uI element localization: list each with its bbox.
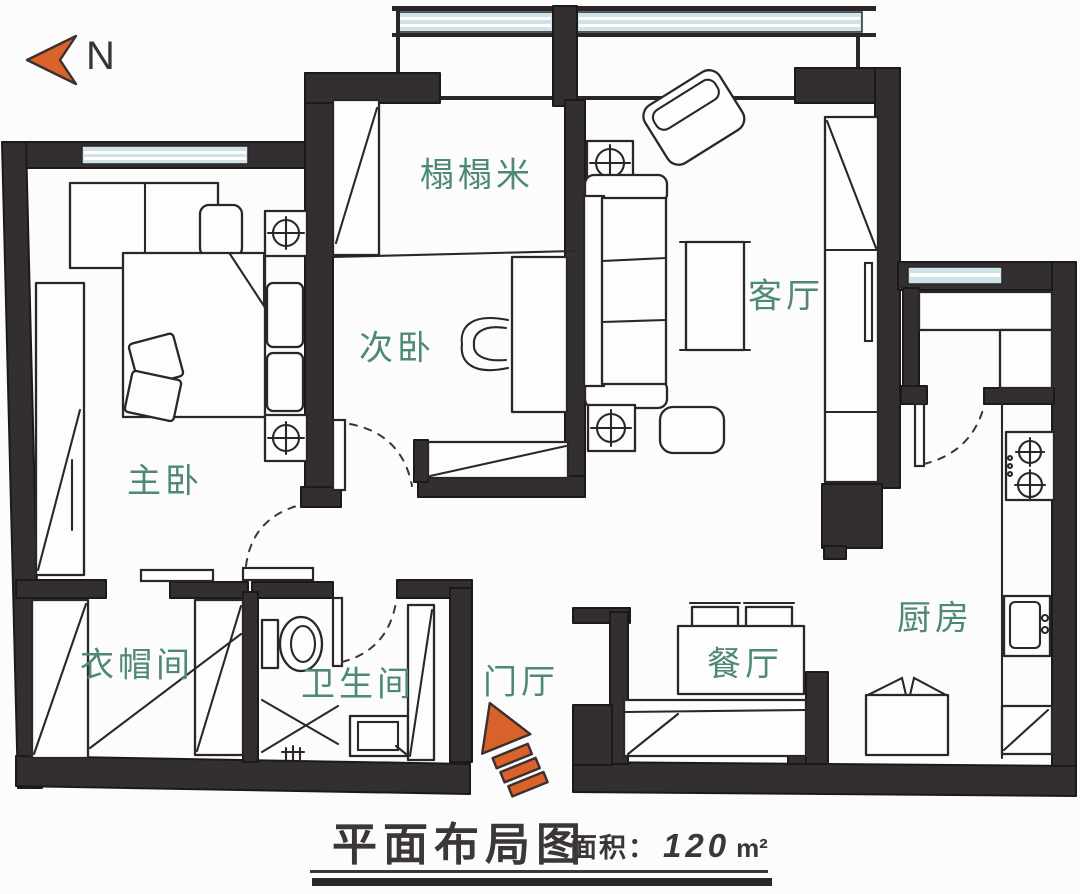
desk-chair (462, 318, 508, 370)
area-label: 面积： (570, 826, 657, 865)
room-label-master-bedroom: 主卧 (127, 454, 203, 503)
armchair (639, 65, 750, 169)
nightstand-lamp (265, 211, 307, 256)
desk (512, 257, 567, 412)
north-label: N (86, 34, 115, 79)
kitchen-sink (1004, 596, 1050, 656)
counter-corner (1000, 330, 1052, 388)
second-bedroom-furniture (428, 257, 568, 478)
base-cabinet (1002, 706, 1052, 754)
room-label-entrance-hall: 门厅 (483, 655, 559, 704)
title-underline-thin (310, 870, 768, 873)
room-label-living-room: 客厅 (748, 269, 824, 318)
nightstand-lamp (265, 415, 307, 461)
storage-bench (624, 700, 806, 756)
tv-cabinet (825, 117, 878, 482)
area-info: 面积： 120 m² (570, 826, 768, 865)
pillow (267, 353, 303, 411)
master-bedroom-door (243, 505, 313, 580)
coffee-table (680, 242, 750, 350)
shower-area-line (262, 706, 338, 752)
room-label-cloakroom: 衣帽间 (80, 638, 194, 687)
entrance-arrow-icon (466, 693, 550, 801)
stool (200, 205, 242, 257)
pillow (267, 283, 303, 347)
shower-area-line (262, 700, 338, 744)
room-label-tatami: 榻榻米 (420, 148, 534, 197)
master-bedroom-window (82, 146, 248, 164)
second-bedroom-door (333, 420, 412, 490)
room-label-bathroom: 卫生间 (301, 657, 415, 706)
dining-chair (744, 603, 794, 628)
living-room-furniture (584, 65, 878, 482)
area-value: 120 (663, 827, 730, 865)
kitchen-window (908, 267, 1002, 284)
cloakroom-door (141, 570, 213, 581)
fridge (866, 678, 948, 755)
cushion (124, 370, 182, 421)
ottoman (660, 407, 724, 453)
master-bedroom-furniture (36, 183, 307, 575)
plan-title: 平面布局图 (332, 808, 587, 873)
floor-drain (282, 746, 304, 760)
floor-plan-drawing (0, 0, 1080, 894)
room-label-second-bedroom: 次卧 (359, 321, 435, 370)
kitchen-door (915, 404, 984, 466)
floor-plan-page: 榻榻米 次卧 客厅 主卧 衣帽间 卫生间 门厅 餐厅 厨房 N 平面布局图 面积… (0, 0, 1080, 894)
wardrobe (36, 283, 84, 575)
title-underline-thick (312, 878, 772, 886)
stove (1006, 432, 1054, 500)
room-label-dining-room: 餐厅 (707, 637, 783, 686)
side-table-lamp (588, 405, 635, 451)
dining-chair (690, 603, 740, 628)
vanity-sink (350, 716, 408, 756)
counter-top (919, 292, 1052, 330)
area-unit: m² (736, 833, 768, 864)
sofa (584, 175, 667, 408)
north-arrow-icon (27, 36, 76, 84)
room-label-kitchen: 厨房 (897, 591, 973, 640)
